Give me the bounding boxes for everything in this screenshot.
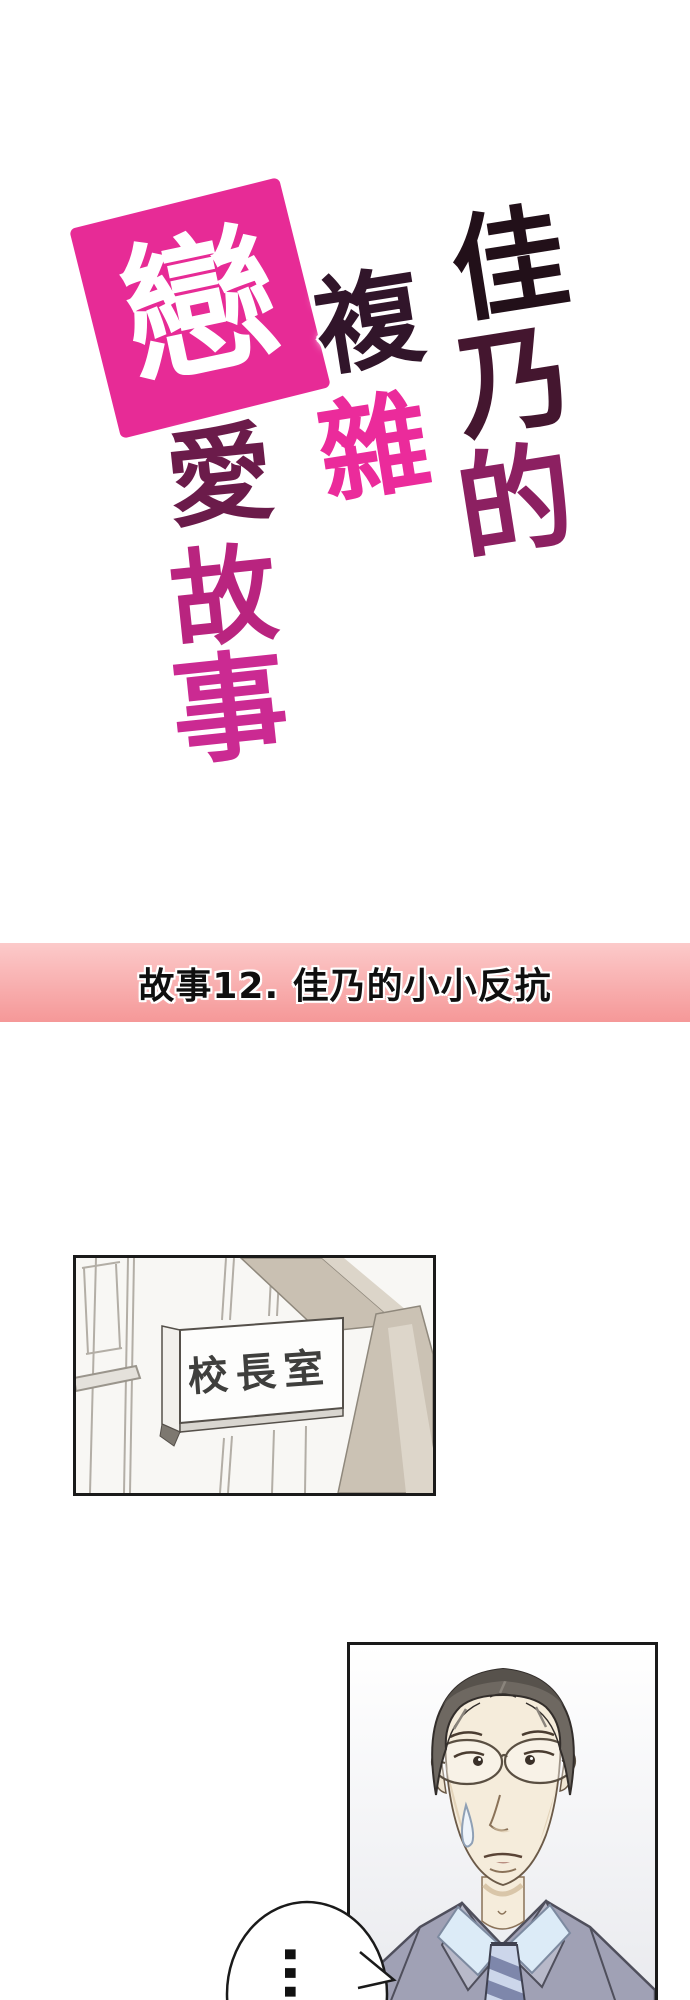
speech-bubble-ellipsis: … — [268, 1938, 338, 2000]
panel-office-sign: 校長室 — [73, 1255, 436, 1496]
chapter-title-text: 故事12. 佳乃的小小反抗 — [138, 957, 551, 1009]
chapter-title-banner: 故事12. 佳乃的小小反抗 — [0, 943, 690, 1022]
logo-char-ai: 愛 — [162, 419, 278, 535]
hallway-artwork: 校長室 — [76, 1258, 433, 1493]
badge-char-love: 戀 — [110, 218, 290, 398]
logo-char-za: 雜 — [311, 385, 437, 511]
logo-char-de: 的 — [450, 438, 582, 570]
love-badge: 戀 — [69, 177, 331, 439]
comic-page: 戀 愛 故 事 複 雜 佳 乃 的 故事12. 佳乃的小小反抗 — [0, 0, 690, 2000]
logo-char-fu: 複 — [308, 262, 429, 383]
logo-char-shi: 事 — [166, 646, 293, 773]
